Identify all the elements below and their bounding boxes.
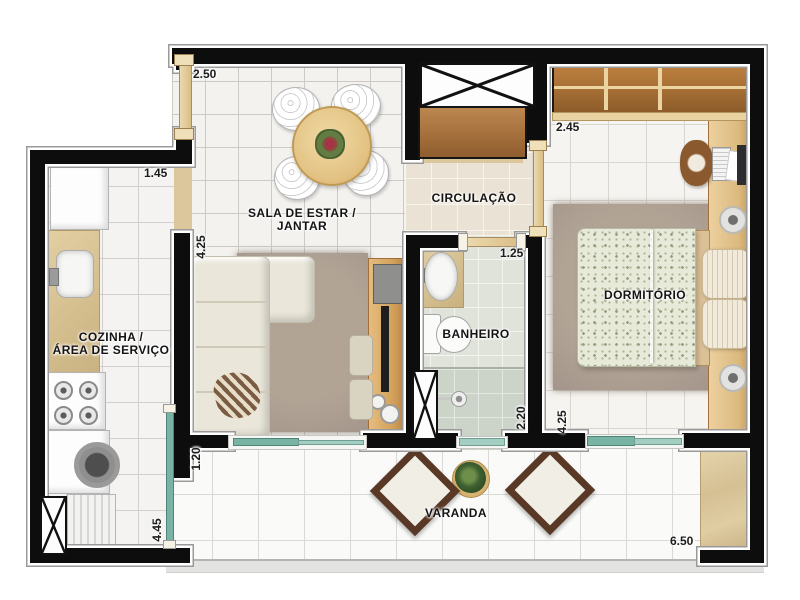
dim-service-depth: 4.45 [157,530,180,544]
desk-chair [680,140,713,186]
dim-bathroom-depth: 2.20 [521,418,544,432]
circulation-label: CIRCULAÇÃO [414,192,534,205]
kitchen-faucet [49,268,59,286]
bedroom-window-glass [587,436,635,446]
bedroom-door [533,150,544,232]
dim-balcony-return: 1.20 [196,459,219,473]
monitor [737,145,747,185]
stove-burner [79,406,98,425]
entry-door [179,62,192,136]
stove-burner [79,381,98,400]
wardrobe-shelf [554,86,748,89]
dim-kitchen-passage: 1.45 [144,166,167,180]
bathroom-faucet [415,268,425,283]
bedroom-door-jamb [529,140,547,151]
living-room-label: SALA DE ESTAR / JANTAR [222,207,382,233]
balcony-edge [166,559,764,573]
shaft-duct [419,62,536,109]
sofa-cushion-line [196,301,266,303]
shaft-duct [40,496,67,555]
bathroom-basin [424,252,458,301]
hall-cabinet [418,106,527,159]
bedroom-door-jamb [529,226,547,237]
stove-burner [54,381,73,400]
pillow [702,299,750,349]
shower-head [451,391,467,407]
potted-plant [455,462,486,493]
kitchen-passage-threshold [174,160,192,235]
pouf [349,335,373,376]
bathroom-door-jamb [458,233,468,251]
rack-knob [380,404,400,424]
wardrobe-front [552,112,752,121]
service-glass-partition [166,408,174,546]
dim-balcony-width: 6.50 [670,534,693,548]
pillow [702,249,750,299]
dim-living-depth: 4.25 [201,247,224,261]
entry-door-hinge [174,54,194,66]
shaft-duct [412,370,438,440]
glass-partition-cap [163,404,176,413]
living-sliding-door-glass [233,438,299,446]
table-fan [719,364,747,392]
fridge [50,167,109,230]
soundbar [381,306,389,392]
kitchen-label-line2: ÁREA DE SERVIÇO [36,344,186,357]
dim-bedroom-depth: 4.25 [562,422,585,436]
stove-burner [54,406,73,425]
sofa-cushion-line [196,346,266,348]
tv [373,264,402,304]
living-room-label-line2: JANTAR [222,220,382,233]
bathroom-window-glass [459,438,505,446]
dim-bedroom-entry: 1.25 [500,246,523,260]
living-sliding-door-glass [298,440,364,445]
floor-plan: SALA DE ESTAR / JANTAR COZINHA / ÁREA DE… [0,0,800,600]
pouf [349,379,373,420]
bathroom-label: BANHEIRO [420,328,532,341]
bedroom-window-glass [634,438,682,445]
service-cabinet [67,494,116,550]
kitchen-sink [56,250,94,298]
table-fan [719,206,747,234]
entry-door-jamb [174,128,194,140]
balcony-label: VARANDA [406,507,506,520]
table-centerpiece [315,129,345,159]
dim-wardrobe: 2.45 [556,120,579,134]
wardrobe [552,64,754,116]
dim-living-entry: 2.50 [193,67,216,81]
balcony-counter [700,448,752,552]
bedroom-label: DORMITÓRIO [585,289,705,302]
kitchen-label: COZINHA / ÁREA DE SERVIÇO [36,331,186,357]
washer-door [74,442,120,488]
